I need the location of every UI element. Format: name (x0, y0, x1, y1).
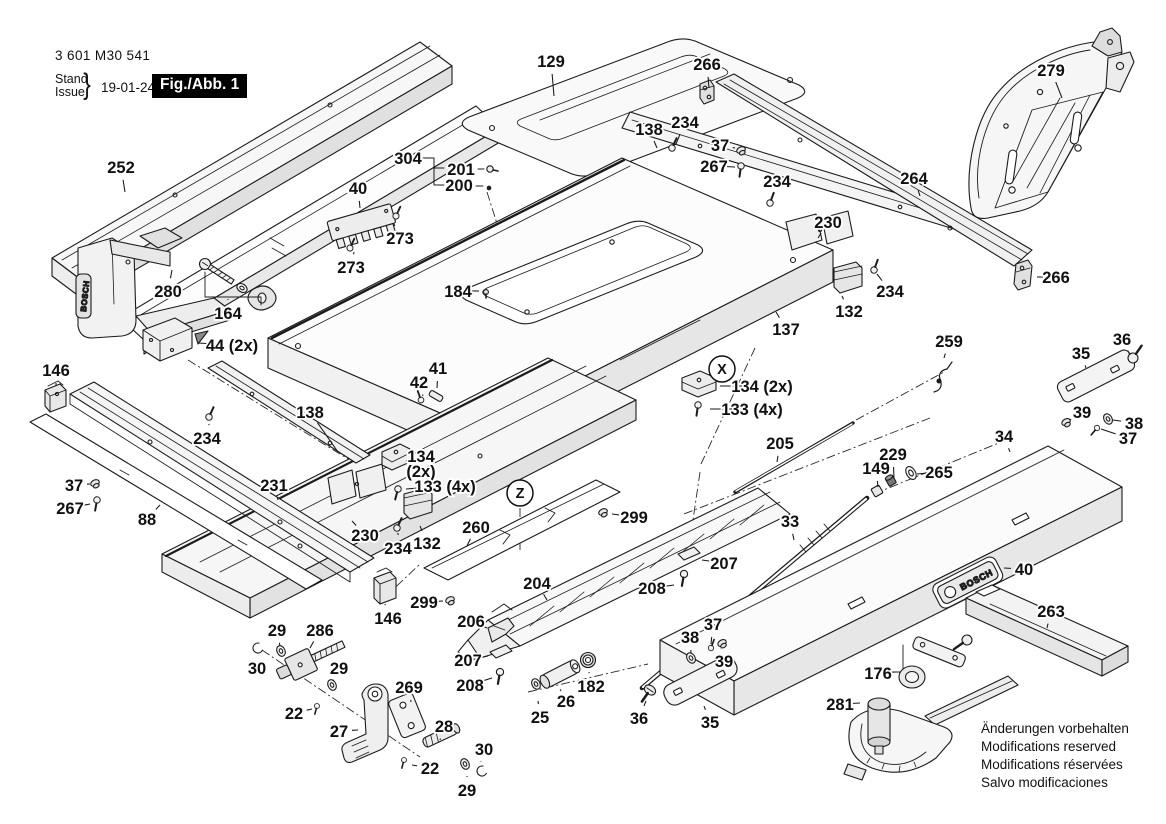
callout-37: 37 (65, 477, 83, 495)
part-146-end-cap-bottom (374, 568, 396, 604)
part-29-washer-b (326, 678, 338, 691)
callout-137: 137 (772, 321, 800, 339)
part-27-support-foot (342, 684, 388, 763)
callout-234: 234 (763, 173, 791, 191)
part-266-clip-bottom (1014, 260, 1032, 290)
callout-40: 40 (1015, 561, 1033, 579)
callout-267: 267 (700, 158, 728, 176)
callout-44-2x-: 44 (2x) (206, 337, 258, 355)
part-234-screw-top-c (870, 259, 881, 274)
note-de: Änderungen vorbehalten (981, 720, 1129, 738)
callout-129: 129 (537, 53, 565, 71)
leader-231 (277, 498, 278, 500)
leader-38 (1113, 420, 1121, 421)
part-26-spacer-sleeve (538, 658, 582, 690)
callout-36: 36 (630, 710, 648, 728)
leader-26 (560, 689, 561, 691)
part-182-grommet (581, 653, 596, 668)
part-149-clip (871, 485, 883, 497)
leader-208 (665, 585, 674, 586)
callout-138: 138 (635, 121, 663, 139)
part-273-screw-a (392, 205, 403, 220)
callout-37: 37 (704, 616, 722, 634)
callout-36: 36 (1113, 331, 1131, 349)
callout-265: 265 (925, 464, 953, 482)
callout-299: 299 (620, 509, 648, 527)
part-30-cclip-a (251, 642, 262, 654)
part-263-angle-bar (966, 585, 1128, 676)
callout-134: 134(2x) (406, 448, 435, 481)
leader-40 (359, 201, 360, 208)
callout-200: 200 (445, 177, 473, 195)
callout-273: 273 (337, 259, 365, 277)
callout-134-2x-: 134 (2x) (731, 378, 792, 396)
callout-182: 182 (577, 678, 605, 696)
callout-204: 204 (523, 575, 551, 593)
callout-26: 26 (557, 693, 575, 711)
callout-207: 207 (454, 652, 482, 670)
callout-30: 30 (475, 741, 493, 759)
callout-22: 22 (285, 705, 303, 723)
leader-29 (279, 643, 280, 646)
callout-299: 299 (410, 594, 438, 612)
callout-281: 281 (826, 696, 854, 714)
callout-266: 266 (693, 56, 721, 74)
document-part-number: 3 601 M30 541 (55, 48, 150, 63)
callout-266: 266 (1042, 269, 1070, 287)
leader-22 (412, 765, 417, 766)
leader-34 (1009, 448, 1010, 452)
note-en: Modifications reserved (981, 738, 1129, 756)
part-234-screw-top-b (766, 192, 777, 207)
figure-label-box: Fig./Abb. 1 (152, 74, 247, 98)
svg-text:Z: Z (516, 486, 525, 502)
callout-205: 205 (766, 435, 794, 453)
note-fr: Modifications réservées (981, 756, 1129, 774)
callout-29: 29 (330, 660, 348, 678)
svg-text:X: X (717, 362, 727, 378)
part-269-bracket-plate (388, 692, 427, 739)
callout-39: 39 (715, 653, 733, 671)
modification-notes: Änderungen vorbehalten Modifications res… (981, 720, 1129, 792)
callout-22: 22 (421, 760, 439, 778)
callout-207: 207 (710, 555, 738, 573)
callout-38: 38 (681, 629, 699, 647)
part-176-pivot-assembly (885, 633, 974, 688)
part-208-screw-right (678, 570, 688, 587)
part-22-screw-a (312, 703, 320, 715)
callout-35: 35 (1072, 345, 1090, 363)
leader-39 (1070, 419, 1071, 420)
callout-231: 231 (260, 477, 288, 495)
leader-205 (777, 456, 778, 462)
callout-273: 273 (386, 230, 414, 248)
part-39-nut-top (1061, 417, 1073, 428)
leader-88 (156, 505, 160, 509)
part-22-screw-b (399, 757, 407, 769)
part-29-washer-c (459, 757, 471, 770)
callout-230: 230 (814, 214, 842, 232)
callout-146: 146 (42, 362, 70, 380)
callout-30: 30 (248, 660, 266, 678)
part-200-pin (487, 186, 491, 190)
callout-133-4x-: 133 (4x) (721, 401, 782, 419)
callout-230: 230 (351, 527, 379, 545)
parts-diagram-page: BOSCH (0, 0, 1166, 824)
leader-149 (877, 481, 878, 487)
part-35-plate-top (1055, 348, 1136, 404)
leader-37 (1101, 429, 1116, 434)
leader-36 (644, 701, 646, 706)
marker-X: X (709, 356, 735, 382)
leader-252 (123, 180, 125, 192)
callout-234: 234 (193, 430, 221, 448)
callout-25: 25 (531, 709, 549, 727)
callout-41: 41 (429, 360, 447, 378)
leader-259 (944, 353, 945, 358)
part-234-screw-left-a (205, 406, 217, 421)
part-279-blade-guard (969, 28, 1134, 218)
part-259-hook-wire (934, 362, 952, 392)
leader-37 (711, 637, 712, 644)
marker-Z: Z (507, 480, 533, 506)
callout-286: 286 (306, 622, 334, 640)
callout-29: 29 (458, 782, 476, 800)
part-30-cclip-b (475, 765, 486, 777)
leader-286 (310, 641, 314, 648)
callout-149: 149 (862, 460, 890, 478)
callout-33: 33 (781, 513, 799, 531)
leader-35 (1085, 365, 1086, 368)
callout-263: 263 (1037, 603, 1065, 621)
part-267-screw-top (736, 162, 744, 177)
callout-138: 138 (296, 404, 324, 422)
callout-252: 252 (107, 159, 135, 177)
leader-234 (877, 274, 882, 281)
callout-28: 28 (435, 718, 453, 736)
callout-176: 176 (864, 665, 892, 683)
callout-40: 40 (349, 180, 367, 198)
leader-29 (333, 680, 334, 681)
leader-208 (482, 678, 492, 681)
part-265-washer (904, 465, 919, 482)
callout-133-4x-: 133 (4x) (414, 478, 475, 496)
callout-234: 234 (384, 540, 412, 558)
callout-208: 208 (638, 580, 666, 598)
part-299-nut-right (598, 507, 610, 518)
part-132-clamp-right (834, 262, 862, 293)
leader-22 (307, 709, 312, 710)
callout-42: 42 (410, 374, 428, 392)
callout-260: 260 (462, 519, 490, 537)
leader-132 (842, 296, 844, 299)
callout-264: 264 (900, 170, 928, 188)
callout-259: 259 (935, 333, 963, 351)
part-38-washer-top (1102, 412, 1114, 426)
callout-37: 37 (1119, 430, 1137, 448)
part-37-screw-top (1089, 424, 1101, 436)
exploded-view-diagram: BOSCH (0, 0, 1166, 824)
callout-164: 164 (214, 305, 242, 323)
part-299-nut-left (445, 595, 457, 606)
callout-208: 208 (456, 677, 484, 695)
callout-234: 234 (671, 114, 699, 132)
leader-280 (170, 270, 172, 278)
leader-35 (704, 706, 705, 710)
callout-146: 146 (374, 610, 402, 628)
callout-88: 88 (138, 511, 156, 529)
callout-132: 132 (413, 535, 441, 553)
part-201-screw (487, 166, 498, 172)
callout-304: 304 (394, 150, 422, 168)
part-208-screw-left (494, 668, 504, 685)
part-37-nut-left (90, 478, 102, 489)
callout-267: 267 (56, 500, 84, 518)
callout-280: 280 (154, 283, 182, 301)
part-133-screw-right (693, 401, 701, 416)
part-29-washer-a (275, 644, 287, 657)
callout-269: 269 (395, 679, 423, 697)
part-267-screw-left (92, 496, 101, 511)
note-es: Salvo modificaciones (981, 774, 1129, 792)
leader-267 (83, 504, 90, 505)
part-36-screw-bottom (637, 683, 657, 705)
brace-glyph: } (83, 68, 91, 102)
part-266-clip-top (700, 80, 714, 104)
callout-39: 39 (1073, 404, 1091, 422)
callout-132: 132 (835, 303, 863, 321)
callout-35: 35 (701, 714, 719, 732)
leader-33 (793, 534, 794, 540)
callout-184: 184 (444, 283, 472, 301)
callout-37: 37 (711, 137, 729, 155)
callout-206: 206 (457, 613, 485, 631)
callout-27: 27 (330, 723, 348, 741)
issue-date: 19-01-24 (101, 80, 155, 95)
part-205-rod (735, 423, 853, 492)
callout-234: 234 (876, 283, 904, 301)
callout-34: 34 (995, 428, 1014, 446)
callout-29: 29 (268, 622, 286, 640)
callout-279: 279 (1037, 62, 1065, 80)
leader-137 (776, 312, 779, 318)
